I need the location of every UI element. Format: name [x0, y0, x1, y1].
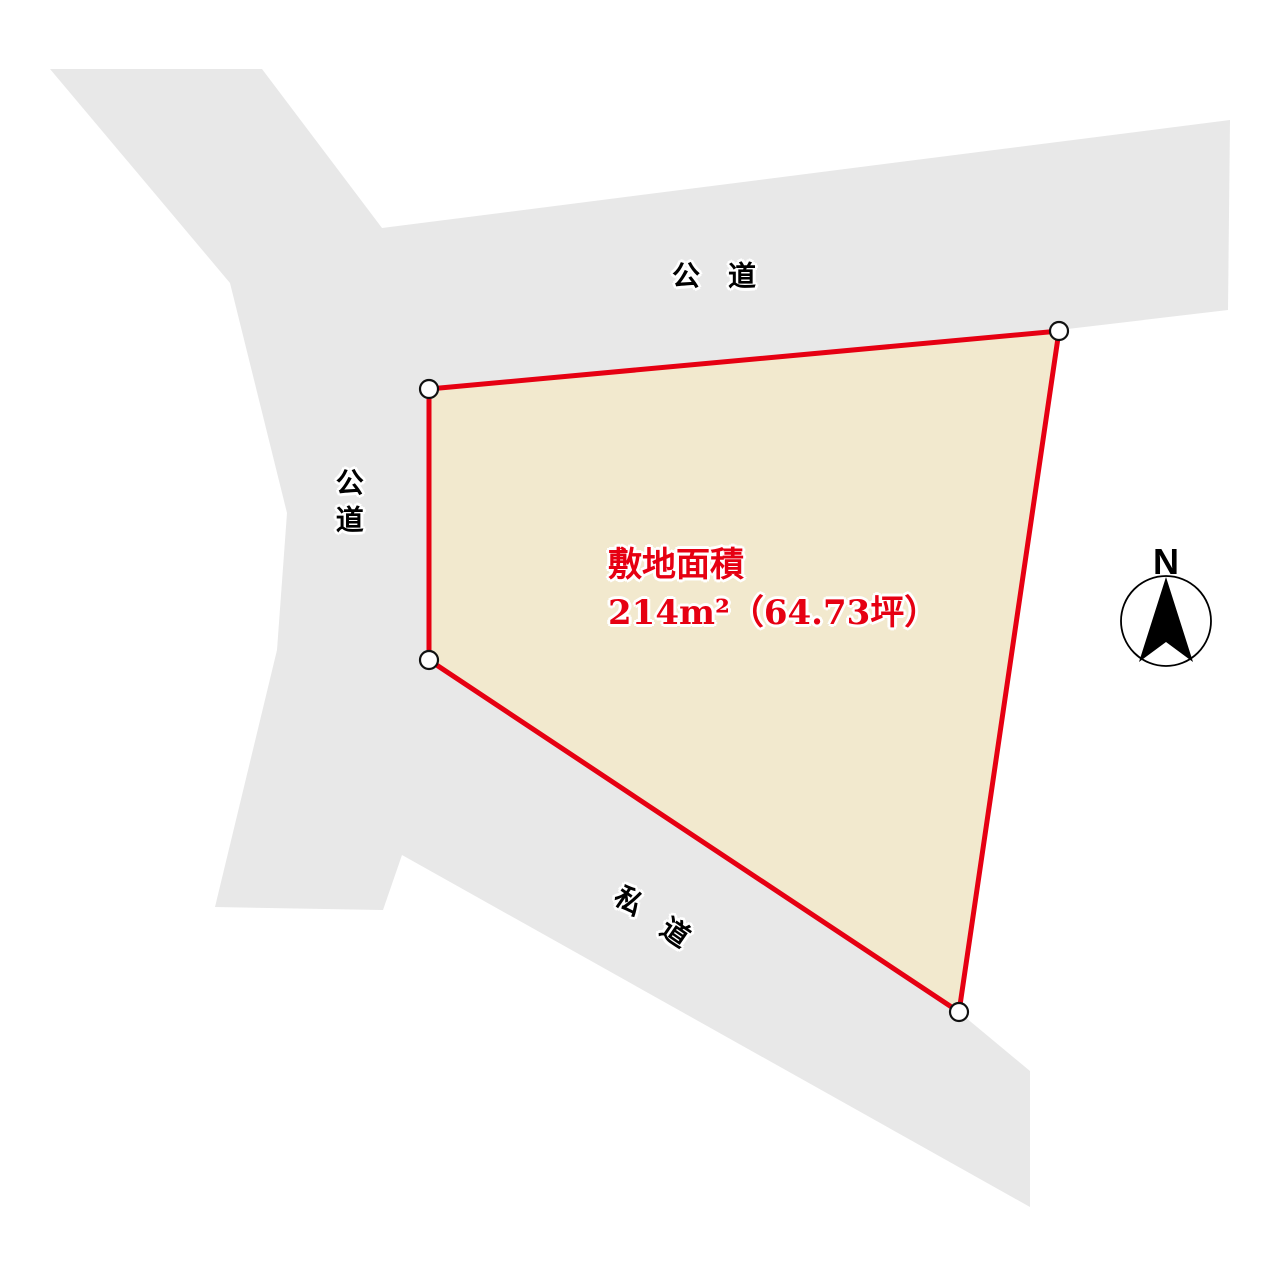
compass: N — [1121, 541, 1211, 666]
site-area-value: 214m²（64.73坪） — [608, 589, 938, 637]
vertex-marker-top-left — [420, 380, 438, 398]
vertex-marker-bottom — [950, 1003, 968, 1021]
compass-north-letter: N — [1153, 541, 1179, 582]
vertex-marker-left-middle — [420, 651, 438, 669]
site-area-annotation: 敷地面積 214m²（64.73坪） — [608, 541, 938, 638]
road-label-top-public: 公 道 — [672, 261, 756, 290]
site-area-heading: 敷地面積 — [608, 541, 938, 589]
vertex-marker-top-right — [1050, 322, 1068, 340]
land-plot-diagram: N 公 道 公道 私 道 敷地面積 214m²（64.73坪） — [0, 0, 1280, 1280]
road-label-left-public: 公道 — [333, 468, 362, 542]
plan-drawing: N — [0, 0, 1280, 1280]
